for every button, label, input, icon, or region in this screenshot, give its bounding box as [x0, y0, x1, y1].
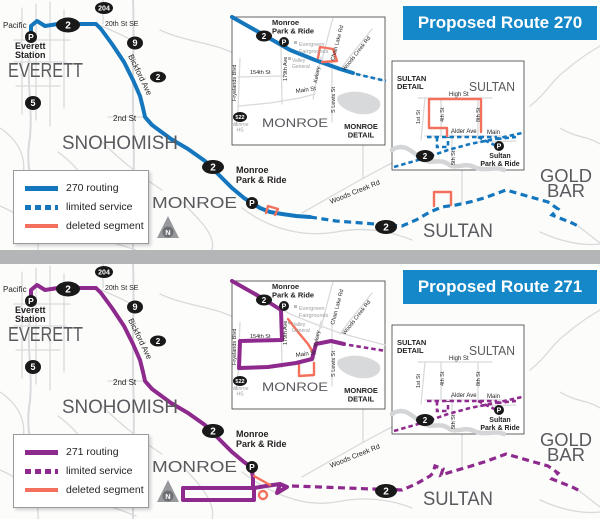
sultan-detail-inset: 2 P SULTAN DETAIL SULTAN High St 1st St …	[392, 325, 524, 434]
svg-text:2: 2	[423, 152, 428, 161]
evergreen-label-2: Fairgrounds	[299, 49, 329, 55]
gold-bar-label-2: BAR	[547, 181, 585, 201]
legend-270: 270 routing limited service deleted segm…	[13, 170, 149, 244]
us2-shield-small: 2	[150, 336, 166, 347]
legend-271: 271 routing limited service deleted segm…	[13, 434, 149, 508]
154th-st-label: 154th St	[250, 70, 271, 76]
inset-monroe-park-ride-icon: P	[279, 37, 289, 47]
legend-swatch-routing	[25, 186, 58, 191]
sultan-detail-caption-2: DETAIL	[397, 346, 424, 355]
monroe-hs-2: HS	[237, 392, 245, 398]
north-arrow: N	[157, 216, 179, 238]
us2-shield-small: 2	[150, 72, 166, 83]
8th-st-label: 8th St	[476, 107, 482, 122]
svg-text:2: 2	[423, 416, 428, 425]
inset-sultan-city-label: SULTAN	[469, 79, 515, 94]
svg-text:522: 522	[235, 379, 244, 385]
svg-text:9: 9	[132, 38, 137, 48]
snohomish-city-label: SNOHOMISH	[62, 397, 178, 418]
svg-text:2: 2	[65, 285, 71, 296]
svg-text:2: 2	[383, 223, 389, 234]
valley-general-2: General	[292, 328, 310, 334]
svg-text:N: N	[165, 228, 170, 237]
everett-station-label-2: Station	[15, 314, 46, 324]
svg-text:9: 9	[132, 302, 137, 312]
valley-general-2: General	[292, 64, 310, 70]
inset-monroe-city-label: MONROE	[262, 116, 328, 130]
snohomish-city-label: SNOHOMISH	[62, 133, 178, 154]
monroe-detail-inset: 2 522 P Monroe Park & Ride Evergreen Fai…	[232, 281, 386, 409]
monroe-detail-caption-2: DETAIL	[348, 395, 375, 404]
svg-text:2: 2	[210, 427, 216, 438]
1st-st-label: 1st St	[416, 373, 422, 388]
legend-row-routing: 271 routing	[25, 446, 148, 458]
legend-row-limited: limited service	[25, 201, 148, 213]
179th-ave-label: 179th Ave	[283, 321, 289, 345]
legend-label-limited: limited service	[66, 201, 133, 213]
svg-text:5: 5	[30, 98, 35, 108]
sultan-pr-label-2: Park & Ride	[480, 425, 519, 432]
sultan-inset-us2-shield: 2	[416, 414, 434, 426]
20th-st-label: 20th St SE	[105, 285, 139, 292]
fryelands-blvd-label: Fryelands Blvd	[232, 329, 238, 365]
legend-label-deleted: deleted segment	[66, 484, 144, 496]
transit-route-maps: 2 204 9 2 5 2 2 P P Pacific Everett Stat…	[0, 0, 600, 519]
sultan-pr-label-1: Sultan	[489, 153, 510, 160]
deleted-segment-sultan	[434, 192, 451, 206]
alder-ave-label: Alder Ave	[451, 129, 477, 135]
inset-sr522-shield: 522	[233, 112, 247, 122]
inset-us2-shield: 2	[256, 295, 272, 306]
panel-divider	[0, 250, 600, 264]
us2-shield-monroe: 2	[202, 424, 224, 438]
everett-city-label: EVERETT	[8, 60, 83, 82]
route-271-limited-line	[292, 454, 580, 491]
inset-sr522-shield: 522	[233, 376, 247, 386]
header-route-271: Proposed Route 271	[403, 270, 597, 304]
svg-text:2: 2	[210, 163, 216, 174]
5th-st-label: 5th St	[451, 414, 457, 429]
legend-swatch-routing	[25, 450, 58, 455]
inset-us2-shield: 2	[256, 31, 272, 42]
monroe-park-ride-label-1: Monroe	[236, 429, 269, 439]
4th-st-label: 4th St	[440, 107, 446, 122]
monroe-hs-2: HS	[237, 128, 245, 134]
5th-st-label: 5th St	[451, 150, 457, 165]
alder-ave-label: Alder Ave	[451, 393, 477, 399]
panel-route-270: 2 204 9 2 5 2 2 P P Pacific Everett Stat…	[0, 0, 600, 250]
main-label: Main	[487, 394, 500, 400]
north-arrow: N	[157, 480, 179, 502]
svg-text:204: 204	[98, 6, 110, 13]
4th-st-label: 4th St	[440, 371, 446, 386]
2nd-st-label: 2nd St	[113, 378, 137, 387]
154th-st-label: 154th St	[250, 334, 271, 340]
header-title-271: Proposed Route 271	[418, 277, 582, 297]
sr204-shield: 204	[95, 2, 113, 14]
us2-shield: 2	[56, 18, 80, 33]
sultan-pr-label-2: Park & Ride	[480, 161, 519, 168]
header-title-270: Proposed Route 270	[418, 13, 582, 33]
panel-route-271: 2 204 9 2 5 2 2 P P Pacific Everett Stat…	[0, 264, 600, 519]
inset-monroe-pr-2: Park & Ride	[272, 27, 314, 36]
svg-text:5: 5	[30, 362, 35, 372]
svg-text:P: P	[497, 144, 502, 151]
sultan-inset-us2-shield: 2	[416, 150, 434, 162]
monroe-detail-inset: 2 522 P Monroe Park & Ride Evergreen Fai…	[232, 17, 386, 145]
monroe-city-label: MONROE	[152, 195, 237, 212]
monroe-detail-caption-2: DETAIL	[348, 131, 375, 140]
evergreen-label-1: Evergreen	[299, 42, 324, 48]
fairgrounds-marker	[294, 41, 297, 44]
inset-sultan-city-label: SULTAN	[469, 343, 515, 358]
monroe-park-ride-icon: P	[246, 461, 258, 473]
legend-row-routing: 270 routing	[25, 182, 148, 194]
sultan-detail-caption-2: DETAIL	[397, 82, 424, 91]
legend-swatch-limited	[25, 469, 58, 474]
svg-text:204: 204	[98, 270, 110, 277]
deleted-segment-monroe	[254, 476, 270, 485]
s-lewis-st-label: S Lewis St	[331, 351, 337, 377]
monroe-park-ride-label-2: Park & Ride	[236, 439, 287, 449]
gold-bar-label-2: BAR	[547, 445, 585, 465]
us2-shield-sultan: 2	[375, 484, 397, 498]
svg-text:2: 2	[262, 296, 267, 305]
inset-monroe-park-ride-icon: P	[279, 301, 289, 311]
high-st-label: High St	[449, 356, 469, 362]
fryelands-blvd-label: Fryelands Blvd	[232, 65, 238, 101]
sultan-park-ride-icon: P	[494, 141, 504, 151]
svg-text:2: 2	[156, 73, 161, 82]
inset-monroe-pr-2: Park & Ride	[272, 291, 314, 300]
svg-text:P: P	[282, 40, 287, 47]
sultan-park-ride-icon: P	[494, 405, 504, 415]
legend-label-routing: 271 routing	[66, 446, 119, 458]
main-label: Main	[487, 130, 500, 136]
svg-text:2: 2	[65, 21, 71, 32]
sr9-shield: 9	[127, 37, 143, 50]
svg-text:522: 522	[235, 115, 244, 121]
legend-label-routing: 270 routing	[66, 182, 119, 194]
svg-text:2: 2	[262, 32, 267, 41]
svg-text:N: N	[165, 492, 170, 501]
everett-city-label: EVERETT	[8, 324, 83, 346]
evergreen-label-1: Evergreen	[299, 306, 324, 312]
monroe-park-ride-label-2: Park & Ride	[236, 175, 287, 185]
legend-row-deleted: deleted segment	[25, 484, 148, 496]
svg-text:P: P	[249, 462, 255, 472]
high-st-label: High St	[449, 92, 469, 98]
legend-swatch-deleted	[25, 224, 58, 228]
sultan-city-label: SULTAN	[423, 489, 493, 510]
monroe-park-ride-label-1: Monroe	[236, 165, 269, 175]
sr9-shield: 9	[127, 301, 143, 314]
deleted-loop-monroe	[259, 491, 267, 499]
legend-swatch-deleted	[25, 488, 58, 492]
pacific-label: Pacific	[3, 285, 27, 294]
legend-label-deleted: deleted segment	[66, 220, 144, 232]
pacific-label: Pacific	[3, 21, 27, 30]
20th-st-label: 20th St SE	[105, 21, 139, 28]
svg-text:P: P	[249, 198, 255, 208]
legend-row-limited: limited service	[25, 465, 148, 477]
i5-shield: 5	[25, 96, 41, 110]
svg-text:P: P	[497, 408, 502, 415]
legend-swatch-limited	[25, 205, 58, 210]
sr204-shield: 204	[95, 266, 113, 278]
everett-station-label-2: Station	[15, 50, 46, 60]
us2-shield-sultan: 2	[375, 220, 397, 234]
179th-ave-label: 179th Ave	[283, 57, 289, 81]
i5-shield: 5	[25, 360, 41, 374]
monroe-city-label: MONROE	[152, 459, 237, 476]
s-lewis-st-label: S Lewis St	[331, 87, 337, 113]
8th-st-label: 8th St	[476, 371, 482, 386]
legend-row-deleted: deleted segment	[25, 220, 148, 232]
fairgrounds-marker	[294, 305, 297, 308]
sultan-city-label: SULTAN	[423, 221, 493, 242]
us2-shield: 2	[56, 282, 80, 297]
1st-st-label: 1st St	[416, 109, 422, 124]
monroe-park-ride-icon: P	[246, 197, 258, 209]
header-route-270: Proposed Route 270	[403, 6, 597, 40]
svg-text:P: P	[282, 304, 287, 311]
inset-monroe-city-label: MONROE	[262, 380, 328, 394]
evergreen-label-2: Fairgrounds	[299, 313, 329, 319]
us2-shield-monroe: 2	[202, 160, 224, 174]
svg-text:2: 2	[156, 337, 161, 346]
sultan-pr-label-1: Sultan	[489, 417, 510, 424]
legend-label-limited: limited service	[66, 465, 133, 477]
sultan-detail-inset: 2 P SULTAN DETAIL SULTAN High St 1st St …	[392, 61, 524, 170]
svg-text:2: 2	[383, 487, 389, 498]
2nd-st-label: 2nd St	[113, 114, 137, 123]
